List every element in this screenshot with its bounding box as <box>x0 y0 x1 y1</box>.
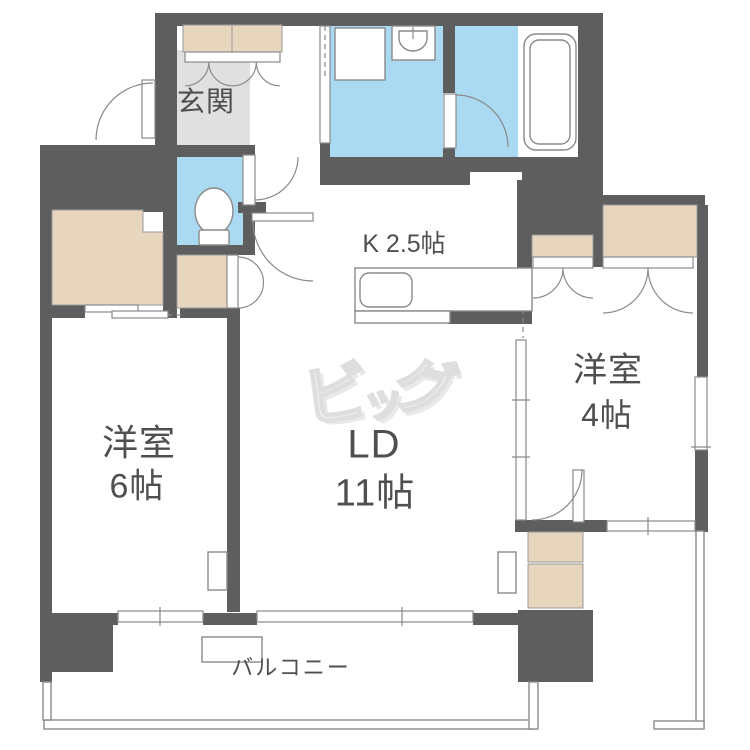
bedroom-right-closet-arcs-large <box>603 268 693 313</box>
room-label-bedroom-right-line2: 4帖 <box>581 390 633 436</box>
living-closet-upper <box>528 532 583 562</box>
kitchen-sink <box>360 273 412 307</box>
ac-unit-left <box>208 552 227 590</box>
balcony-railing <box>43 531 704 729</box>
living-balcony-window <box>257 611 473 622</box>
bedroom-right-closet-arcs-small <box>533 268 593 298</box>
hall-closet <box>177 255 227 308</box>
closet-sliding-door-2 <box>112 311 168 318</box>
hall-washroom-partition <box>320 26 330 143</box>
bedroom-right-closet-large <box>603 205 697 257</box>
toilet-door-arc <box>255 157 298 200</box>
kitchen-counter-edge <box>355 311 450 323</box>
entrance-door <box>142 80 155 138</box>
bedroom-right-closet-small <box>532 235 593 257</box>
balcony-rail-bottom <box>44 720 534 729</box>
ac-unit-right <box>498 552 516 593</box>
toilet-tank <box>199 230 229 245</box>
room-label-entrance: 玄関 <box>177 80 235 120</box>
shoe-closet-door <box>185 52 280 62</box>
bedroom-right-closet-door-small <box>533 257 593 268</box>
living-entry-door-arc <box>253 221 313 281</box>
hall-closet-door <box>227 255 238 308</box>
living-closet-lower <box>528 564 583 608</box>
hall-closet-door-arcs <box>238 257 264 308</box>
toilet-door <box>243 155 255 205</box>
floor-plan: ビ ッ グ 玄関 K 2.5帖 LD 11帖 洋室 6帖 洋室 4帖 バルコニー <box>0 0 750 750</box>
toilet-bowl <box>195 188 233 234</box>
room-label-bedroom-right-line1: 洋室 <box>573 343 643 392</box>
service-rail-vertical <box>696 531 704 728</box>
bathroom-floor <box>455 26 518 160</box>
balcony-rail-left-cap <box>43 682 51 720</box>
room-label-living-line2: 11帖 <box>335 462 415 517</box>
living-entry-door <box>252 213 313 221</box>
room-label-balcony: バルコニー <box>231 650 351 682</box>
bedroom-left-closet <box>52 210 163 305</box>
room-label-bedroom-left-line2: 6帖 <box>110 459 165 508</box>
bedroom-right-bottom-window <box>607 521 695 531</box>
bedroom-right-side-window <box>695 377 707 450</box>
washing-machine-space <box>335 28 385 80</box>
bathtub-inner <box>530 40 570 144</box>
room-label-kitchen: K 2.5帖 <box>362 224 445 260</box>
bedroom-right-closet-door-large <box>603 257 693 268</box>
service-rail-horizontal <box>654 721 704 729</box>
balcony-rail-right-cap <box>529 682 538 729</box>
bathroom-door <box>444 94 456 148</box>
living-bedroom-partition-glass <box>516 340 526 520</box>
